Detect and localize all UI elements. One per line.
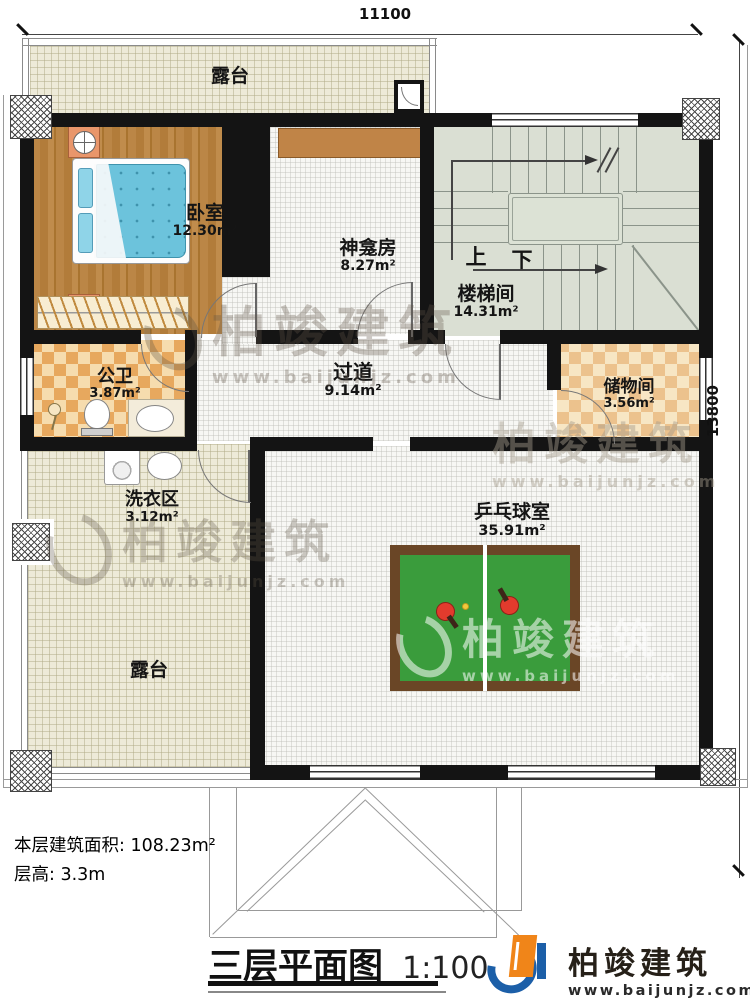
terrace-right-railing	[429, 38, 436, 115]
room-area: 35.91m²	[478, 523, 545, 539]
room-label-bathroom: 公卫 3.87m²	[65, 367, 165, 402]
shrine-door-leaf	[411, 282, 413, 337]
nightstand-lamp	[73, 131, 96, 154]
pingpong-net-line	[483, 545, 487, 691]
brand-site: www.baijunjz.com	[568, 983, 750, 999]
floor-area-note: 本层建筑面积: 108.23m²	[14, 832, 216, 857]
down-text: 下	[512, 249, 533, 273]
room-name: 楼梯间	[457, 284, 514, 305]
roof-ridge-inner	[247, 799, 366, 912]
title-underline-thin	[208, 991, 446, 993]
wall	[20, 113, 34, 358]
room-label-stairwell: 楼梯间 14.31m²	[430, 284, 542, 321]
roof-line	[209, 788, 210, 937]
room-area: 3.56m²	[603, 397, 654, 412]
room-label-shrine: 神龛房 8.27m²	[313, 238, 423, 275]
room-area: 8.27m²	[340, 259, 395, 275]
wall-storage-left	[547, 330, 561, 390]
window-pingpong-bottom-left	[310, 765, 420, 780]
bed-pillow	[78, 213, 93, 253]
room-name: 洗衣区	[125, 490, 179, 510]
brand-name: 柏竣建筑	[568, 938, 750, 983]
washing-machine	[104, 449, 140, 485]
wall-bedroom-bottom	[20, 330, 141, 344]
floor-plan: 11100 13800	[0, 0, 750, 1005]
wall-shrine-bottom	[256, 330, 358, 344]
title-underline-thick	[208, 981, 438, 986]
column-hatch	[10, 750, 52, 792]
top-dimension-line	[22, 34, 698, 35]
room-label-laundry: 洗衣区 3.12m²	[97, 490, 207, 525]
terrace-top-railing	[22, 38, 437, 46]
wall-stair-bottom	[500, 330, 713, 344]
room-label-pingpong: 乒乓球室 35.91m²	[452, 502, 572, 540]
room-name: 过道	[333, 361, 373, 383]
room-name: 储物间	[604, 378, 655, 397]
room-area: 3.12m²	[125, 510, 178, 525]
wardrobe	[37, 296, 189, 329]
wall-corridor-bottom	[410, 437, 547, 451]
floor-height-note: 层高: 3.3m	[14, 861, 105, 886]
wall-pingpong-bottom	[250, 765, 310, 780]
brand-logo-building	[509, 935, 537, 977]
brand-logo	[487, 933, 563, 997]
brand-logo-building-bar	[537, 943, 546, 979]
room-area: 3.87m²	[89, 387, 140, 402]
dimension-top: 11100	[330, 5, 440, 23]
roof-ridge-inner	[365, 800, 484, 913]
room-area: 9.14m²	[324, 383, 381, 399]
bedroom-door-leaf	[255, 283, 257, 337]
room-label-terrace-bottom: 露台	[99, 660, 199, 681]
room-label-storage: 储物间 3.56m²	[574, 378, 684, 412]
roof-line	[237, 910, 522, 911]
bathroom-sink	[136, 405, 174, 432]
room-label-corridor: 过道 9.14m²	[298, 361, 408, 400]
window-bathroom-left	[20, 358, 34, 415]
wall-stair-bottom	[434, 330, 445, 344]
lot-edge-right	[747, 45, 748, 788]
stair-side-lines-left	[434, 191, 508, 246]
stair-arrow-up-head	[585, 155, 598, 165]
stair-side-lines-right	[623, 191, 699, 246]
stair-down-label: 下	[509, 249, 535, 273]
toilet-tank	[81, 428, 113, 436]
wall-pingpong-left	[250, 437, 265, 780]
wall	[430, 113, 492, 127]
brand-text: 柏竣建筑 www.baijunjz.com	[568, 938, 750, 999]
room-area: 12.30m²	[172, 224, 237, 240]
lot-edge-left	[3, 95, 4, 788]
stair-arrow-up-horiz	[451, 160, 589, 162]
room-name: 露台	[211, 66, 249, 87]
eave-line	[3, 787, 747, 788]
stair-up-label: 上	[463, 246, 489, 270]
window-stairwell-top	[492, 113, 638, 127]
terrace-bottom-left-railing	[21, 450, 28, 766]
room-label-terrace-top: 露台	[180, 66, 280, 87]
window-pingpong-bottom-right	[508, 765, 655, 780]
column-hatch	[700, 748, 736, 786]
wall-pingpong-bottom	[420, 765, 508, 780]
wall-corridor-bottom	[255, 437, 373, 451]
wall-right	[699, 113, 713, 358]
laundry-sink	[147, 452, 182, 480]
roof-line	[236, 788, 237, 910]
room-label-bedroom: 卧室 12.30m²	[150, 203, 260, 240]
room-name: 乒乓球室	[474, 502, 550, 523]
stair-arrow-up-vert	[451, 160, 453, 260]
stair-arrow-down-horiz	[473, 269, 598, 271]
room-name: 露台	[130, 660, 168, 681]
room-area: 14.31m²	[453, 305, 518, 321]
room-name: 神龛房	[339, 238, 396, 259]
altar-table	[278, 128, 422, 158]
pingpong-ball	[462, 603, 469, 610]
up-text: 上	[466, 246, 487, 270]
toilet	[84, 399, 110, 429]
bed-pillow	[78, 168, 93, 208]
laundry-door-leaf	[248, 450, 250, 502]
right-dimension-line	[739, 41, 740, 878]
roof-line	[521, 788, 522, 910]
wall-right	[699, 420, 713, 780]
room-name: 卧室	[186, 203, 224, 224]
dimension-right: 13800	[704, 385, 722, 437]
stair-arrow-down-head	[595, 264, 608, 274]
room-name: 公卫	[97, 367, 133, 387]
column-hatch	[12, 523, 50, 561]
stair-landing	[508, 193, 623, 245]
wall-bathroom-bottom	[20, 437, 197, 451]
stair-lower-flight	[543, 245, 635, 330]
stair-landing-inner	[512, 197, 619, 241]
column-hatch	[10, 95, 52, 139]
wall-bedroom-shrine	[222, 113, 270, 277]
column-hatch	[682, 98, 720, 140]
stairwell-door-leaf	[499, 344, 501, 399]
